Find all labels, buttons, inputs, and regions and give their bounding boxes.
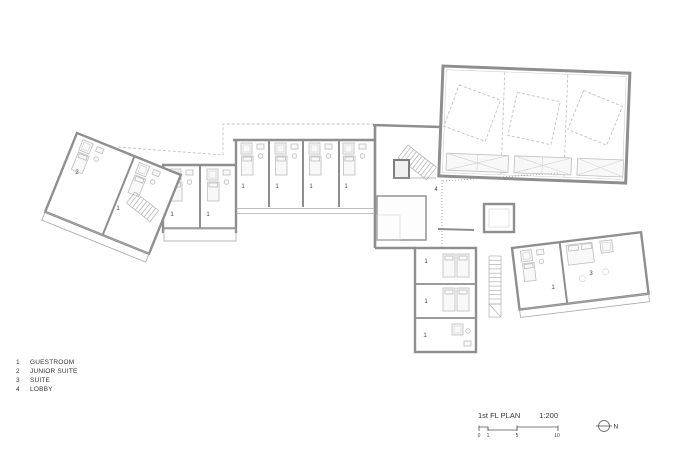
legend-item-label: GUESTROOM [30, 359, 74, 366]
scale-tick: 5 [516, 433, 519, 439]
room-label-guestroom: 1 [206, 212, 210, 218]
north-arrow-icon: N [596, 421, 619, 432]
east-wing [512, 232, 650, 317]
service-shaft [484, 204, 514, 232]
room-label-lobby: 4 [434, 187, 438, 193]
plan-title: 1st FL PLAN [478, 411, 520, 420]
legend-item-label: SUITE [30, 377, 51, 384]
room-label-guestroom: 1 [170, 212, 174, 218]
floor-plan-page: 2 1 1 1 1 1 1 1 4 1 1 1 1 3 1 GUESTROOM … [0, 0, 700, 453]
title-block: 1st FL PLAN 1:200 0 1 5 10 N [478, 411, 619, 439]
lobby-elevator [394, 160, 409, 178]
legend: 1 GUESTROOM 2 JUNIOR SUITE 3 SUITE 4 LOB… [16, 359, 78, 393]
legend-item-number: 2 [16, 368, 20, 375]
scale-tick: 10 [554, 433, 560, 439]
bathroom-pod [207, 169, 230, 201]
scale-tick: 0 [478, 433, 481, 439]
floor-plan-drawing: 2 1 1 1 1 1 1 1 4 1 1 1 1 3 1 GUESTROOM … [0, 0, 700, 453]
legend-item-number: 3 [16, 377, 20, 384]
bathroom-pod [241, 143, 264, 175]
legend-item-label: LOBBY [30, 386, 53, 393]
scale-tick: 1 [487, 433, 490, 439]
lobby-back-room [377, 196, 426, 240]
room-label-guestroom: 1 [275, 184, 279, 190]
legend-item-number: 1 [16, 359, 20, 366]
south-stair [489, 256, 501, 317]
legend-item-number: 4 [16, 386, 20, 393]
room-label-guestroom: 1 [344, 184, 348, 190]
bathroom-pod [343, 143, 366, 175]
north-label: N [614, 424, 619, 431]
scale-bar: 0 1 5 10 [478, 426, 560, 440]
left-wing [42, 133, 181, 262]
legend-item-label: JUNIOR SUITE [30, 368, 78, 375]
bathroom-pod [275, 143, 298, 175]
room-label-guestroom: 1 [241, 184, 245, 190]
hall [439, 66, 630, 183]
room-label-guestroom: 1 [309, 184, 313, 190]
bathroom-pod [309, 143, 332, 175]
plan-scale: 1:200 [539, 411, 558, 420]
terrace [164, 229, 236, 241]
